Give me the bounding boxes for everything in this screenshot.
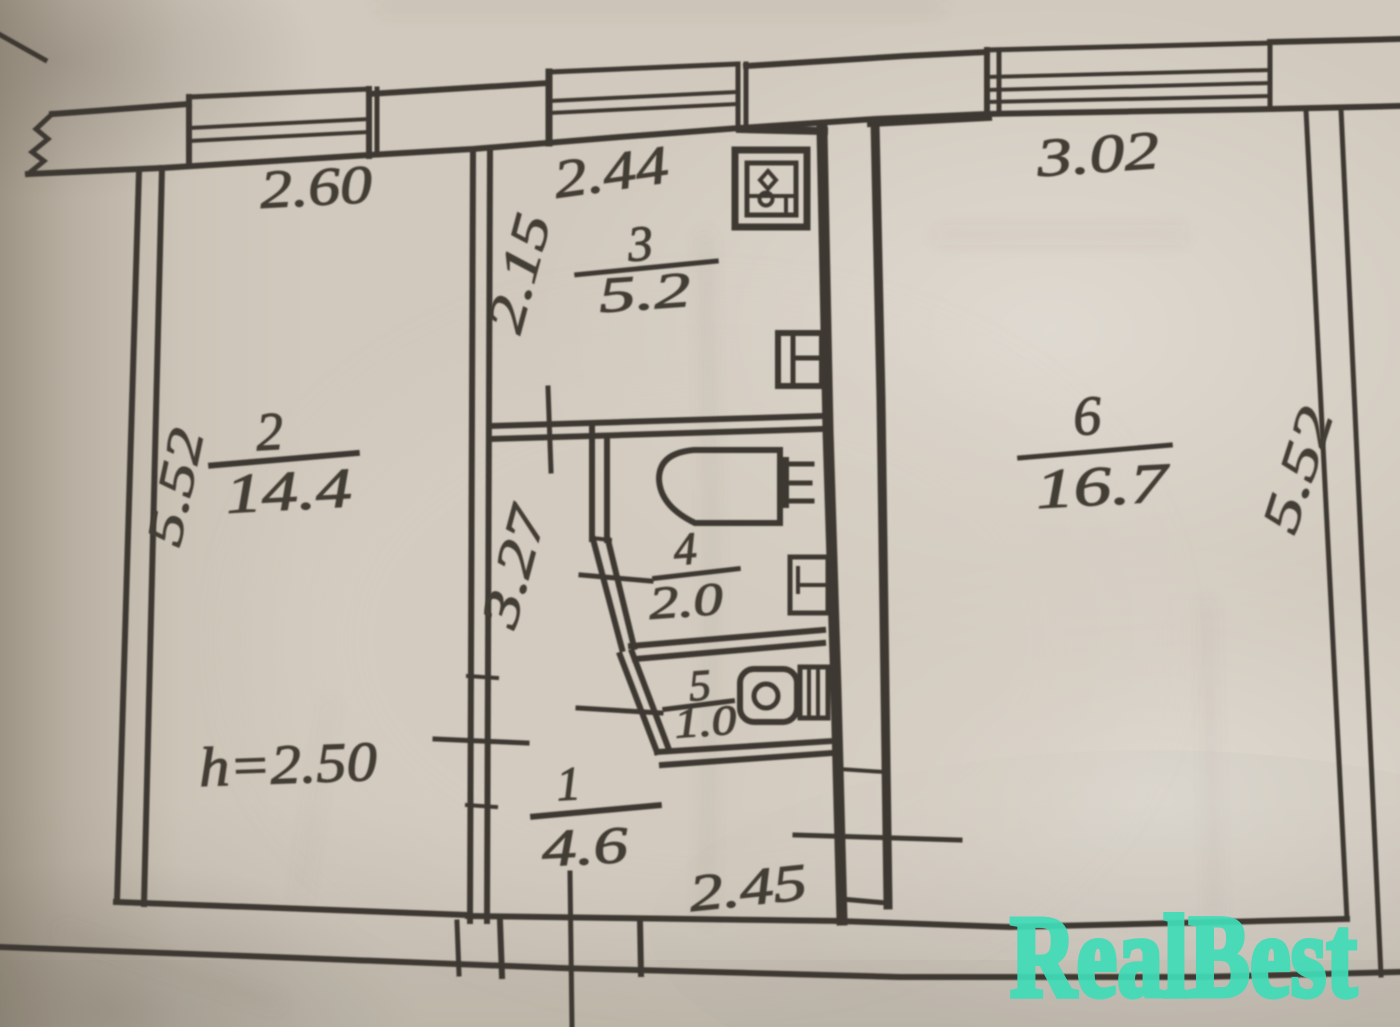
svg-text:16.7: 16.7 <box>1034 452 1172 521</box>
svg-text:h=2.50: h=2.50 <box>198 731 378 799</box>
svg-text:5.2: 5.2 <box>597 261 693 323</box>
svg-text:RealBest: RealBest <box>1010 891 1357 1022</box>
svg-text:1.0: 1.0 <box>673 698 738 748</box>
svg-text:6: 6 <box>1072 385 1103 448</box>
svg-text:2.60: 2.60 <box>259 154 374 220</box>
svg-text:4.6: 4.6 <box>540 817 629 878</box>
svg-text:4: 4 <box>672 523 699 575</box>
svg-text:14.4: 14.4 <box>224 457 353 526</box>
svg-text:3.02: 3.02 <box>1034 120 1161 188</box>
svg-text:1: 1 <box>555 757 582 811</box>
svg-text:2: 2 <box>254 401 284 462</box>
svg-text:2.0: 2.0 <box>647 573 724 629</box>
